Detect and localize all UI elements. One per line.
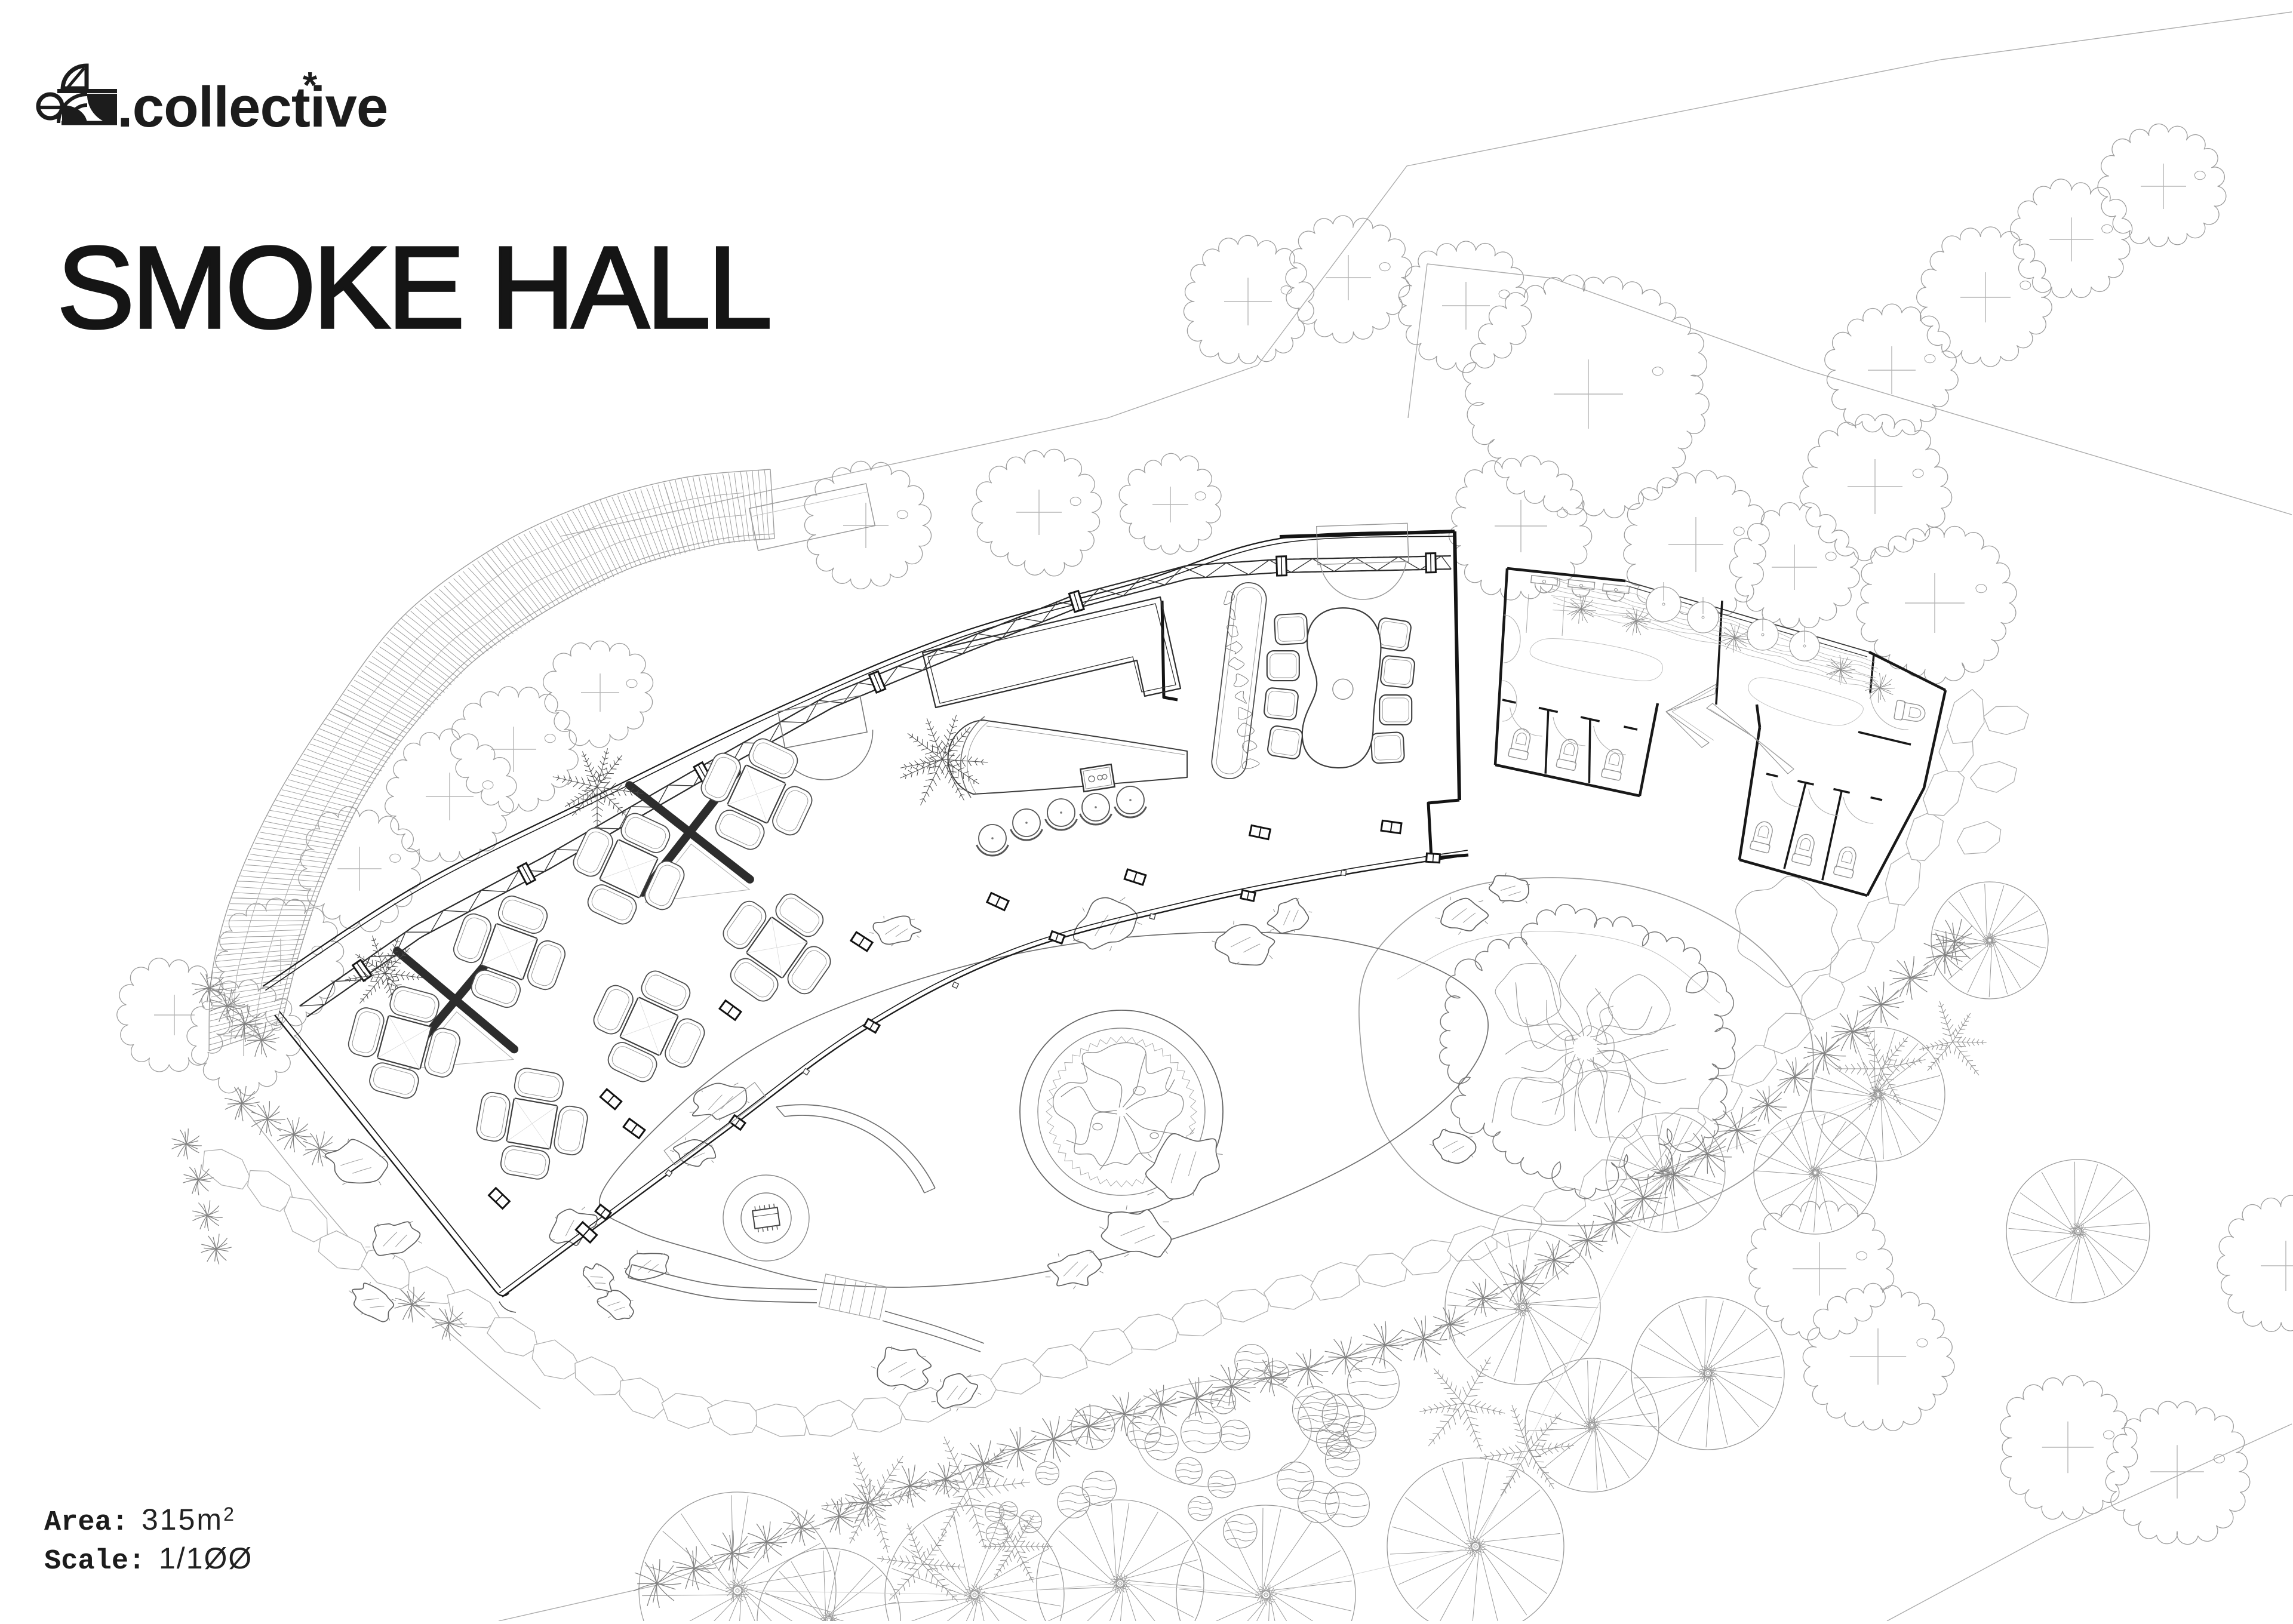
svg-text:Area:: Area:	[44, 1507, 128, 1539]
svg-text:.collective: .collective	[117, 75, 388, 139]
svg-text:315m2: 315m2	[142, 1503, 236, 1536]
svg-text:*: *	[303, 65, 318, 106]
svg-text:Scale:: Scale:	[44, 1546, 145, 1577]
svg-text:1/1ØØ: 1/1ØØ	[159, 1542, 253, 1575]
svg-text:SMOKE HALL: SMOKE HALL	[57, 222, 769, 353]
